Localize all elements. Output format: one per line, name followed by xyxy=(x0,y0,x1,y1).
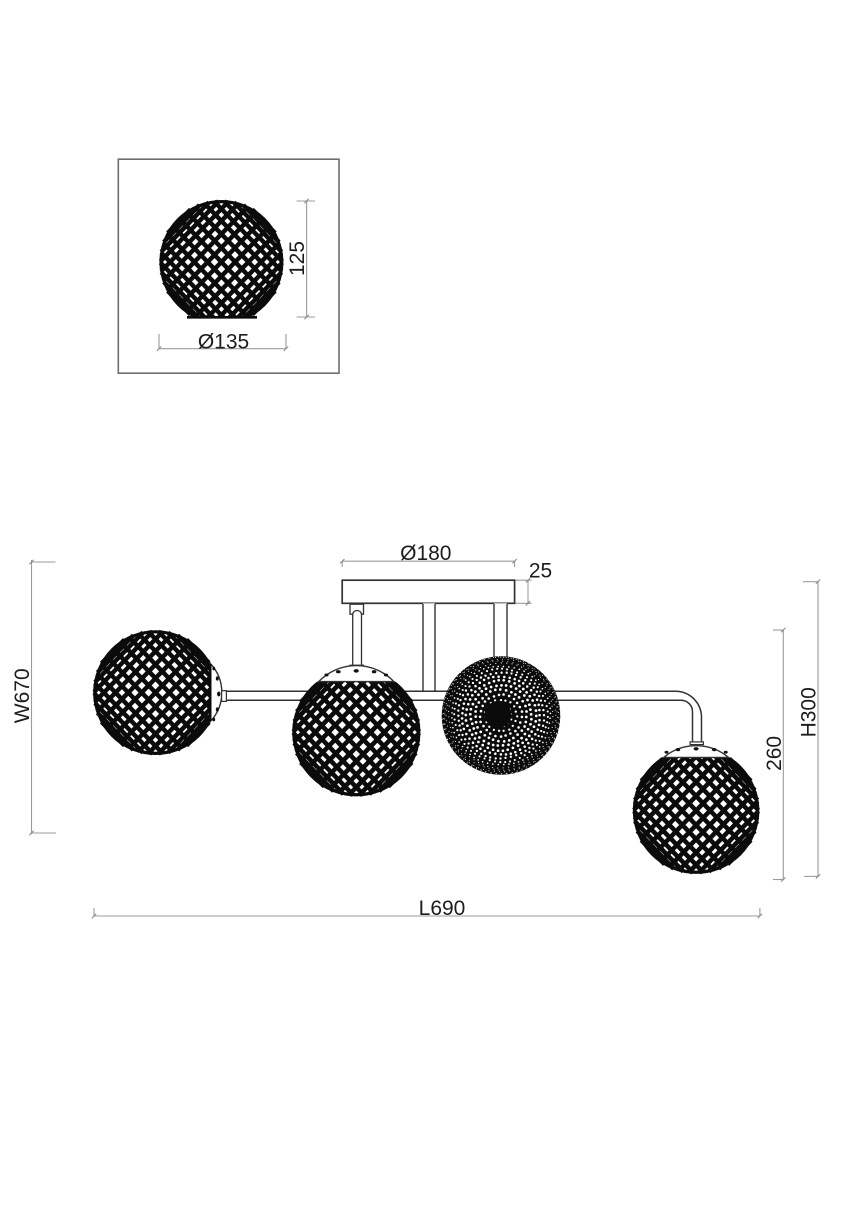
svg-text:Ø135: Ø135 xyxy=(198,330,249,353)
svg-text:260: 260 xyxy=(763,736,786,771)
svg-text:25: 25 xyxy=(529,559,552,582)
svg-text:Ø180: Ø180 xyxy=(400,542,451,565)
svg-text:H300: H300 xyxy=(798,687,821,737)
svg-text:W670: W670 xyxy=(11,668,34,723)
svg-text:125: 125 xyxy=(286,241,309,276)
svg-text:L690: L690 xyxy=(419,897,466,920)
